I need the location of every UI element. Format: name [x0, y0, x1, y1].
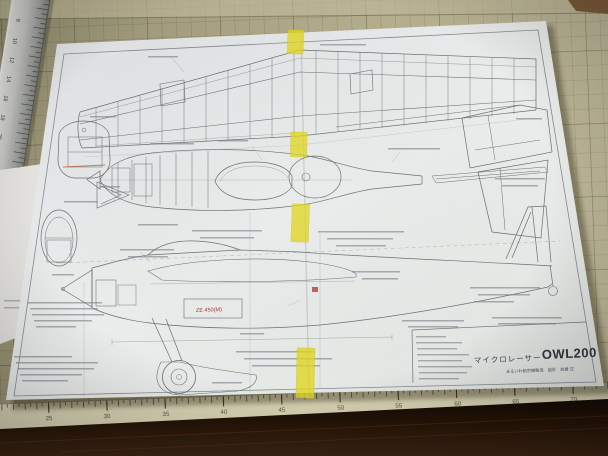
vignette-overlay [0, 0, 608, 456]
photo-canvas: 25 30 35 40 45 50 55 60 65 70 8 10 12 14… [0, 0, 608, 456]
photo-of-model-plane-plan: 25 30 35 40 45 50 55 60 65 70 8 10 12 14… [0, 0, 608, 456]
